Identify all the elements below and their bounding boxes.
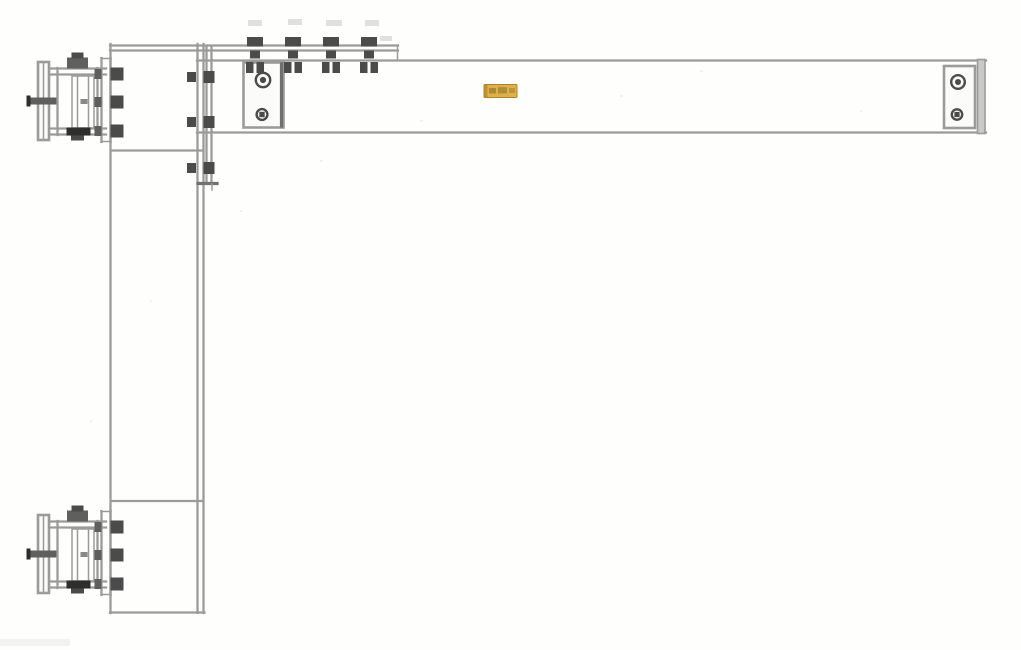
id-tag-print: [498, 87, 507, 93]
upper-wall-pivot-bracket: [27, 53, 124, 143]
technical-drawing-canvas: [0, 0, 1021, 650]
bottom-dark-block: [67, 581, 91, 589]
bolt: [187, 116, 215, 128]
bolt: [95, 521, 124, 534]
bolt: [360, 20, 379, 73]
top-bolt-head: [72, 53, 84, 59]
bolt: [95, 549, 124, 562]
bolt: [284, 19, 302, 73]
pivot-pin-cap: [27, 96, 31, 107]
clevis-center-mark: [81, 99, 88, 104]
bottom-bolt-nub: [71, 136, 84, 141]
bottom-bolt-nub: [71, 589, 84, 594]
corner-connection-plate: [187, 47, 217, 190]
jib-crane-elevation-drawing: [0, 0, 1021, 650]
id-tag-print: [509, 88, 515, 93]
beam-end-bar: [978, 60, 986, 134]
bolt: [187, 71, 215, 83]
bolt: [95, 578, 124, 591]
bolt: [95, 125, 124, 138]
bolt: [95, 96, 124, 109]
pivot-pin-cap: [27, 549, 31, 560]
bottom-dark-block: [67, 128, 91, 136]
scan-noise: [0, 70, 862, 646]
bolt: [187, 162, 215, 174]
pivot-pin: [28, 551, 57, 558]
clevis-center-mark: [81, 552, 88, 557]
lower-wall-pivot-bracket: [27, 506, 124, 596]
top-bolt-block: [67, 511, 88, 522]
orange-id-tag: [484, 85, 517, 98]
bolt: [95, 68, 124, 81]
top-bolt-head: [72, 506, 84, 512]
boom-end-plate-right: [944, 66, 975, 128]
scan-smudge: [380, 36, 392, 41]
id-tag-print: [489, 88, 496, 94]
vertical-column: [110, 44, 205, 613]
pivot-pin: [28, 98, 57, 105]
bolt: [322, 20, 342, 73]
top-bolt-block: [67, 58, 88, 69]
id-tag-edge: [484, 85, 488, 98]
horizontal-boom-beam: [197, 60, 986, 134]
